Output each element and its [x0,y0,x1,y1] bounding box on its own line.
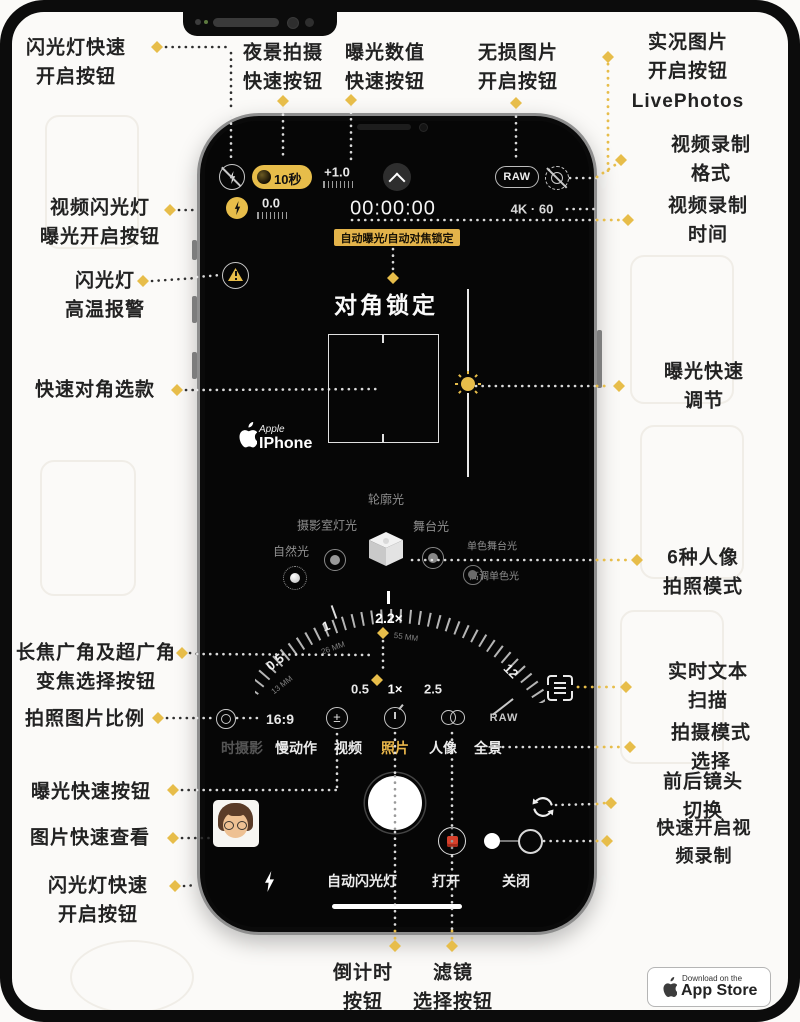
expand-drawer-button[interactable] [383,163,411,191]
apple-logo-icon [657,976,677,1000]
portrait-mode-stage[interactable]: 舞台光 [413,518,449,535]
video-exposure-value[interactable]: 0.0 [262,196,280,211]
aspect-inner-ring [221,714,231,724]
chevron-up-icon [389,173,406,190]
filter-circle [450,710,465,725]
brand-apple-text: Apple [259,424,285,435]
exposure-slider-line-top [467,289,469,374]
notch-speaker [213,18,279,27]
studio-light-ball [330,555,340,565]
night-mode-button[interactable]: 10秒 [252,165,312,189]
front-camera-dot [419,123,428,132]
camera-flip-button[interactable] [530,794,556,820]
annotation-video-time: 视频录制时间 [662,192,754,251]
flash-off-button[interactable] [219,164,245,190]
notch-camera-dot [305,18,314,27]
timer-hand [394,712,396,719]
volume-up-button[interactable] [192,296,197,323]
ae-af-lock-text: 自动曝光/自动对焦锁定 [340,233,453,245]
video-flash-button[interactable] [226,197,248,219]
scan-line [554,682,566,684]
mute-switch[interactable] [192,240,197,260]
poster-notch [183,10,337,36]
focus-tick-bottom [382,434,384,442]
notch-camera-dot [287,17,299,29]
stage-light-ball [428,553,438,563]
ae-af-lock-badge: 自动曝光/自动对焦锁定 [334,229,460,246]
annotation-quick-diagonal: 快速对角选款 [35,375,155,404]
filter-connector-line [500,840,520,842]
mode-slomo[interactable]: 慢动作 [275,738,317,758]
zoom-current-value: 2.2× [375,610,403,626]
annotation-photo-ratio: 拍照图片比例 [25,704,145,733]
natural-light-ball [290,573,300,583]
portrait-mode-studio[interactable]: 摄影室灯光 [297,517,357,534]
flash-off-slash [221,167,241,187]
annotation-zoom-select: 长焦广角及超广角 变焦选择按钮 [16,639,176,698]
annotation-countdown: 倒计时 按钮 [333,959,393,1018]
photo-preview-thumbnail[interactable] [213,800,259,847]
aspect-ratio-icon[interactable] [216,709,236,729]
studio-light-dot[interactable] [324,549,346,571]
exposure-value[interactable]: +1.0 [324,165,350,180]
focus-square[interactable] [328,334,439,443]
portrait-mode-contour[interactable]: 轮廓光 [368,491,404,508]
earpiece-speaker [357,124,411,130]
zoom-dial-indicator-tick [387,591,390,604]
mode-photo-selected[interactable]: 照片 [381,738,409,758]
warning-exclaim-dot [235,278,237,280]
exposure-slider-line-bottom [467,393,469,477]
annotation-live-text-scan: 实时文本扫描 [662,658,754,717]
memoji-glasses-left [224,821,234,830]
stage-light-dot[interactable] [422,547,444,569]
zoom-button-25[interactable]: 2.5 [424,682,442,697]
annotation-quick-video: 快速开启视频录制 [656,815,752,871]
diagonal-lock-text: 对角锁定 [334,286,438,320]
annotation-exposure-value: 曝光数值 快速按钮 [345,39,425,98]
annotation-exposure-quick: 曝光快速按钮 [31,777,151,806]
app-store-big-text: App Store [681,982,757,1000]
filter-red-cube [447,836,458,847]
aspect-ratio-value[interactable]: 16:9 [266,711,294,727]
live-text-scan-button[interactable] [547,675,573,701]
notch-dot [195,19,201,25]
timer-button[interactable] [384,707,406,729]
scan-line [554,692,566,694]
annotation-photo-view: 图片快速查看 [30,823,150,852]
focus-tick-top [382,335,384,343]
home-indicator[interactable] [332,904,462,909]
warning-exclaim [235,271,237,276]
filter-button[interactable] [441,710,467,726]
raw-button[interactable]: RAW [495,166,539,188]
app-store-badge[interactable]: Download on the App Store [647,967,771,1007]
portrait-mode-natural[interactable]: 自然光 [273,543,309,560]
filter-on-label[interactable]: 打开 [432,871,460,891]
filter-off-label[interactable]: 关闭 [502,871,530,891]
watermark-phone-outline [40,460,136,596]
watermark-circle [70,940,194,1014]
auto-flash-label: 自动闪光灯 [327,871,397,891]
portrait-cube-icon[interactable] [365,528,407,570]
moon-icon [257,170,271,184]
filter-white-dot[interactable] [484,833,500,849]
apple-logo-icon [231,421,257,451]
mode-portrait[interactable]: 人像 [429,738,457,758]
annotation-live-photos: 实况图片 开启按钮 LivePhotos [632,28,744,116]
annotation-video-flash: 视频闪光灯 曝光开启按钮 [40,194,160,253]
annotation-portrait-modes: 6种人像 拍照模式 [663,544,743,603]
stage-mono-ball [468,570,477,579]
flash-warning-button[interactable] [222,262,249,289]
memoji-glasses-right [237,821,247,830]
annotation-video-format: 视频录制格式 [667,131,756,190]
portrait-mode-stage-mono[interactable]: 单色舞台光 [467,538,517,553]
annotation-flash-warning: 闪光灯 高温报警 [65,267,145,326]
camera-screen: 10秒 +1.0 RAW 0.0 00:00:00 4K · 60 自动曝光/自… [205,121,589,927]
video-exposure-ruler [257,212,287,219]
notch-green-dot [204,20,208,24]
sun-core [461,377,475,391]
video-record-time: 00:00:00 [350,198,436,221]
annotation-night-mode: 夜景拍摄 快速按钮 [243,39,323,98]
power-button[interactable] [597,330,602,388]
stage-mono-light-dot[interactable] [463,565,483,585]
exposure-ruler [323,181,353,188]
plusminus-glyph: ± [333,710,340,725]
live-photo-off-button[interactable] [545,166,569,190]
filter-red-selected[interactable] [438,827,466,855]
exposure-quick-button[interactable]: ± [326,707,348,729]
mode-timelapse[interactable]: 时摄影 [221,738,263,758]
tutorial-infographic: 10秒 +1.0 RAW 0.0 00:00:00 4K · 60 自动曝光/自… [0,0,800,1022]
night-timer-label: 10秒 [274,169,301,188]
zoom-button-1x[interactable]: 1× [388,682,403,697]
mode-pano[interactable]: 全景 [474,738,502,758]
video-format-label[interactable]: 4K · 60 [511,202,554,217]
video-flash-bolt-icon [233,201,242,215]
annotation-lossless-image: 无损图片 开启按钮 [478,39,558,98]
volume-down-button[interactable] [192,352,197,379]
timer-stem [398,704,403,710]
raw-label: RAW [503,171,530,183]
shutter-button[interactable] [368,776,422,830]
raw-off-indicator[interactable]: RAW [490,700,519,736]
filter-off-ring[interactable] [518,829,543,854]
annotation-exposure-adjust: 曝光快速调节 [656,358,752,417]
annotation-flash-quick-open-bottom: 闪光灯快速 开启按钮 [48,872,148,931]
scan-line [554,687,566,689]
brand-iphone-text: IPhone [259,435,312,453]
auto-flash-bolt-icon[interactable] [262,871,277,892]
mode-video[interactable]: 视频 [334,738,362,758]
annotation-flash-quick-open-top: 闪光灯快速 开启按钮 [26,34,126,93]
annotation-filter-select: 滤镜 选择按钮 [413,959,493,1018]
zoom-button-05[interactable]: 0.5 [351,682,369,697]
